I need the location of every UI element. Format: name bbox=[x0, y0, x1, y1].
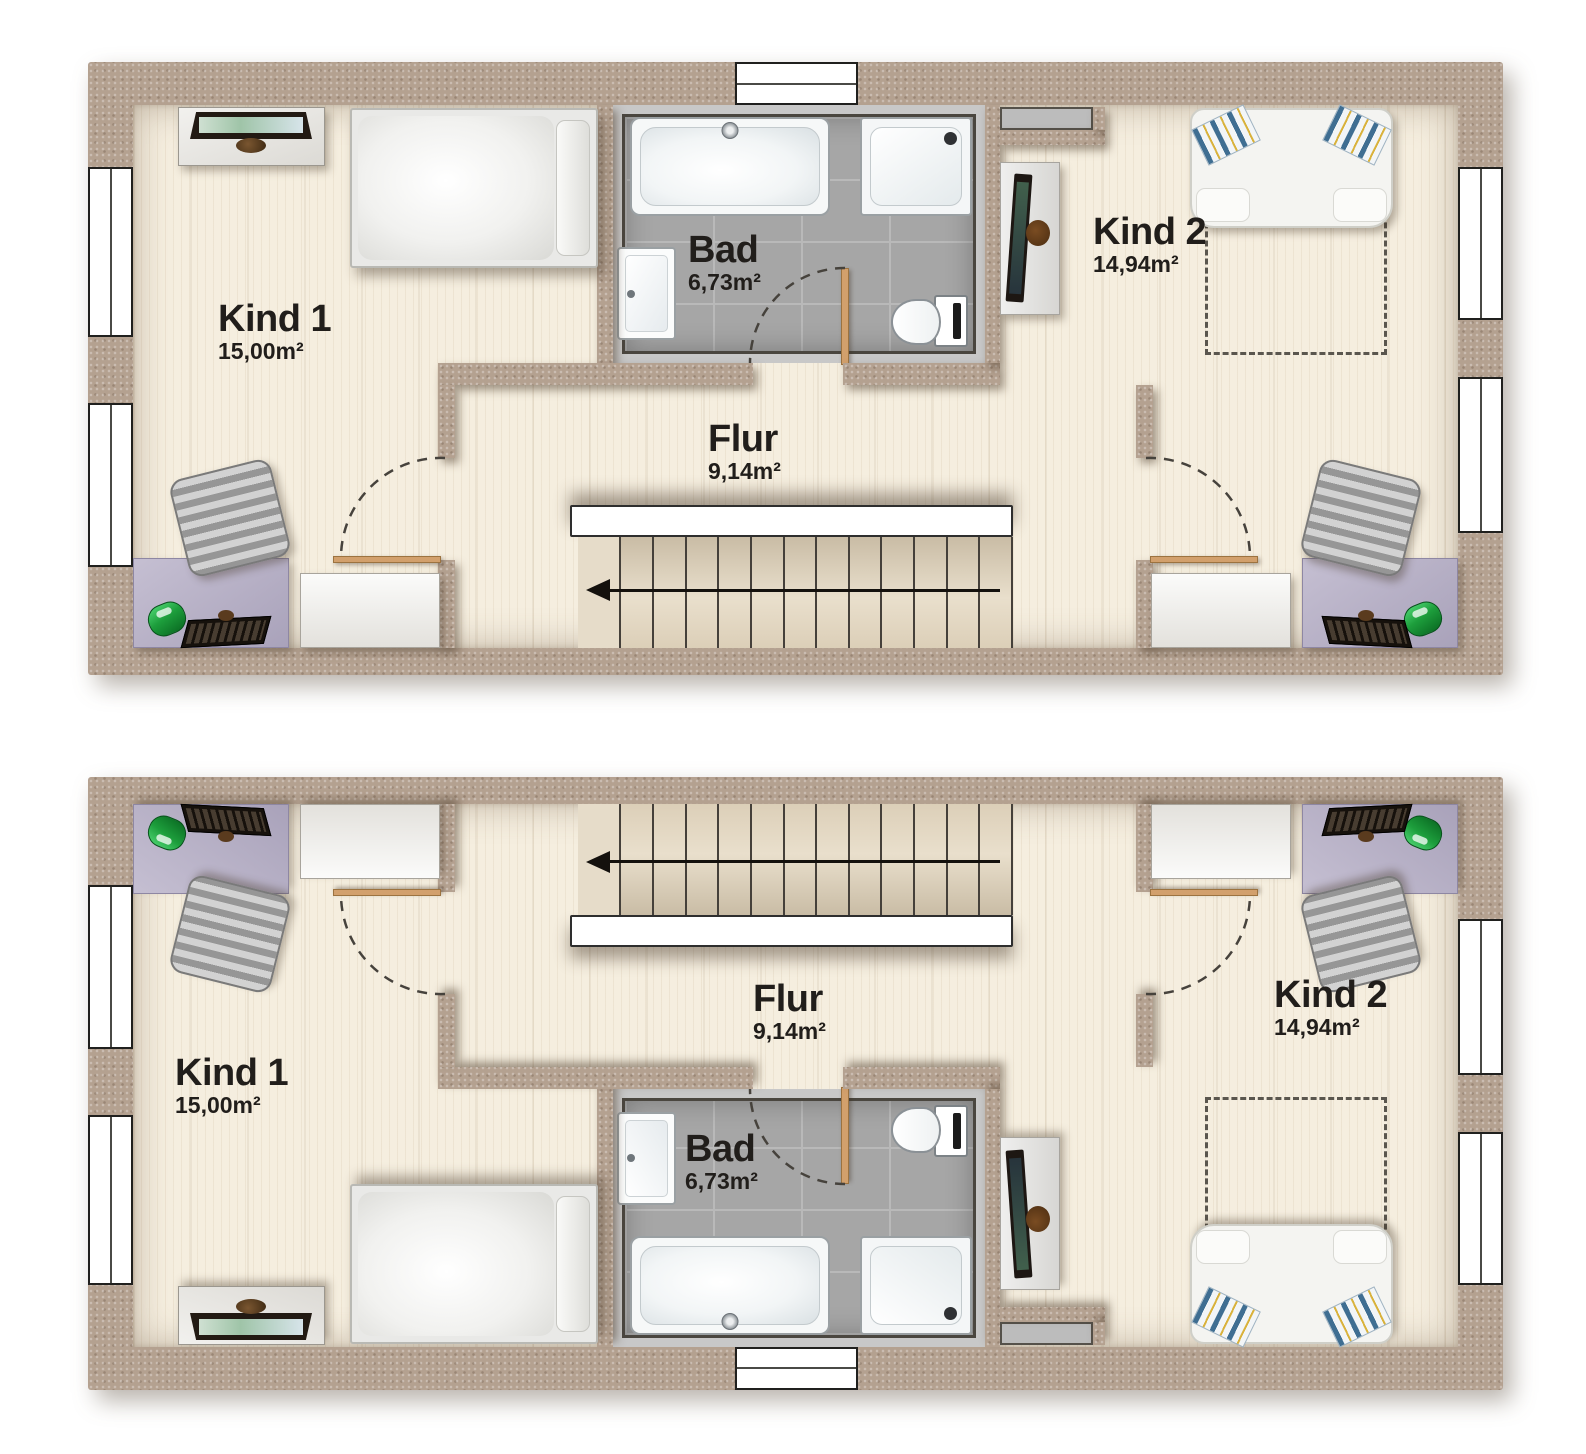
wardrobe-kind1 bbox=[300, 804, 440, 879]
bathroom-door-leaf bbox=[841, 268, 849, 365]
room-name: Bad bbox=[688, 230, 761, 270]
wall-bad-kind2 bbox=[985, 1089, 1000, 1347]
window-icon bbox=[1458, 377, 1503, 533]
speaker-icon bbox=[1026, 1206, 1050, 1232]
room-area: 14,94m² bbox=[1093, 252, 1206, 276]
stair-direction-arrow bbox=[586, 851, 1000, 873]
wall-flur-right bbox=[843, 1067, 1000, 1089]
shower bbox=[860, 1236, 972, 1335]
wall-flur-left bbox=[438, 363, 753, 385]
room-label-kind1-lower: Kind 1 15,00m² bbox=[175, 1053, 288, 1118]
room-name: Flur bbox=[753, 979, 826, 1019]
room-area: 15,00m² bbox=[175, 1093, 288, 1117]
room-name: Kind 1 bbox=[218, 299, 331, 339]
staircase-landing-edge bbox=[570, 915, 1013, 947]
door-stub-kind1-top bbox=[438, 385, 455, 458]
room-area: 9,14m² bbox=[708, 459, 781, 483]
room-name: Kind 2 bbox=[1274, 975, 1387, 1015]
mouse-icon bbox=[218, 831, 234, 842]
faucet-icon bbox=[722, 1313, 739, 1330]
seat-pillow bbox=[1333, 188, 1387, 222]
floor-plan-lower: Kind 1 15,00m² Bad 6,73m² Flur 9,14m² Ki… bbox=[88, 777, 1503, 1390]
door-stub-kind1-bottom bbox=[438, 560, 455, 648]
wall-kind1-bad bbox=[597, 1089, 613, 1347]
door-stub-kind1-top bbox=[438, 994, 455, 1067]
door-leaf-kind1 bbox=[333, 889, 441, 896]
room-name: Kind 2 bbox=[1093, 212, 1206, 252]
striped-cushion bbox=[1191, 104, 1261, 165]
monitor-icon bbox=[190, 112, 312, 139]
wall-flur-left bbox=[438, 1067, 753, 1089]
window-icon bbox=[88, 167, 133, 337]
room-area: 9,14m² bbox=[753, 1019, 826, 1043]
stair-direction-arrow bbox=[586, 579, 1000, 601]
room-name: Kind 1 bbox=[175, 1053, 288, 1093]
window-icon bbox=[88, 885, 133, 1049]
bathtub bbox=[630, 117, 830, 216]
sofa-bed-kind2 bbox=[1190, 108, 1393, 228]
shower bbox=[860, 117, 972, 216]
window-icon bbox=[1458, 919, 1503, 1075]
room-area: 15,00m² bbox=[218, 339, 331, 363]
room-name: Flur bbox=[708, 419, 781, 459]
window-icon bbox=[1458, 1132, 1503, 1285]
mouse-icon bbox=[1358, 831, 1374, 842]
wardrobe-kind2 bbox=[1151, 573, 1291, 648]
washbasin bbox=[617, 247, 676, 340]
plan-structure-mirrored bbox=[88, 777, 1503, 1390]
desk-lamp-icon bbox=[1404, 603, 1442, 635]
desk-lamp-icon bbox=[148, 603, 186, 635]
wall-flur-right bbox=[843, 363, 1000, 385]
bathroom-door-leaf bbox=[841, 1087, 849, 1184]
plan-structure bbox=[88, 777, 1503, 1390]
toilet-bowl bbox=[891, 1107, 941, 1153]
toilet-bowl bbox=[891, 299, 941, 345]
mouse-icon bbox=[218, 610, 234, 621]
window-icon bbox=[88, 1115, 133, 1285]
bed-kind1 bbox=[350, 1184, 598, 1344]
niche-wall-stub bbox=[1093, 1322, 1105, 1345]
seat-pillow bbox=[1333, 1230, 1387, 1264]
bed-kind1 bbox=[350, 108, 598, 268]
desk-lamp-icon bbox=[1404, 817, 1442, 849]
wardrobe-kind2 bbox=[1151, 804, 1291, 879]
striped-cushion bbox=[1322, 104, 1392, 165]
wall-bad-kind2 bbox=[985, 105, 1000, 363]
window-icon bbox=[735, 62, 858, 105]
striped-cushion bbox=[1322, 1286, 1392, 1347]
room-area: 6,73m² bbox=[685, 1169, 758, 1193]
room-label-flur-upper: Flur 9,14m² bbox=[708, 419, 781, 484]
monitor-stand bbox=[236, 1299, 266, 1314]
window-icon bbox=[88, 403, 133, 567]
door-stub-kind2-top bbox=[1136, 385, 1153, 458]
door-leaf-kind2 bbox=[1150, 556, 1258, 563]
faucet-icon bbox=[722, 122, 739, 139]
niche-wall-stub bbox=[1093, 107, 1105, 130]
door-stub-kind2-top bbox=[1136, 994, 1153, 1067]
room-name: Bad bbox=[685, 1129, 758, 1169]
monitor-stand bbox=[236, 138, 266, 153]
plan-structure bbox=[88, 62, 1503, 675]
speaker-icon bbox=[1026, 220, 1050, 246]
window-icon bbox=[1458, 167, 1503, 320]
room-label-kind2-upper: Kind 2 14,94m² bbox=[1093, 212, 1206, 277]
room-label-bad-lower: Bad 6,73m² bbox=[685, 1129, 758, 1194]
monitor-icon bbox=[190, 1313, 312, 1340]
mouse-icon bbox=[1358, 610, 1374, 621]
staircase-landing-edge bbox=[570, 505, 1013, 537]
door-stub-kind1-bottom bbox=[438, 804, 455, 892]
room-area: 14,94m² bbox=[1274, 1015, 1387, 1039]
striped-cushion bbox=[1191, 1286, 1261, 1347]
desk-lamp-icon bbox=[148, 817, 186, 849]
room-label-bad-upper: Bad 6,73m² bbox=[688, 230, 761, 295]
door-leaf-kind2 bbox=[1150, 889, 1258, 896]
wall-niche bbox=[1000, 107, 1093, 130]
room-label-flur-lower: Flur 9,14m² bbox=[753, 979, 826, 1044]
room-label-kind1-upper: Kind 1 15,00m² bbox=[218, 299, 331, 364]
bathtub bbox=[630, 1236, 830, 1335]
window-icon bbox=[735, 1347, 858, 1390]
washbasin bbox=[617, 1112, 676, 1205]
sofa-bed-kind2 bbox=[1190, 1224, 1393, 1344]
seat-pillow bbox=[1196, 1230, 1250, 1264]
room-label-kind2-lower: Kind 2 14,94m² bbox=[1274, 975, 1387, 1040]
floor-plan-upper: Kind 1 15,00m² Bad 6,73m² Flur 9,14m² Ki… bbox=[88, 62, 1503, 675]
room-area: 6,73m² bbox=[688, 270, 761, 294]
niche-wall-band bbox=[1000, 130, 1105, 145]
door-leaf-kind1 bbox=[333, 556, 441, 563]
wall-kind1-bad bbox=[597, 105, 613, 363]
wall-niche bbox=[1000, 1322, 1093, 1345]
wardrobe-kind1 bbox=[300, 573, 440, 648]
niche-wall-band bbox=[1000, 1307, 1105, 1322]
